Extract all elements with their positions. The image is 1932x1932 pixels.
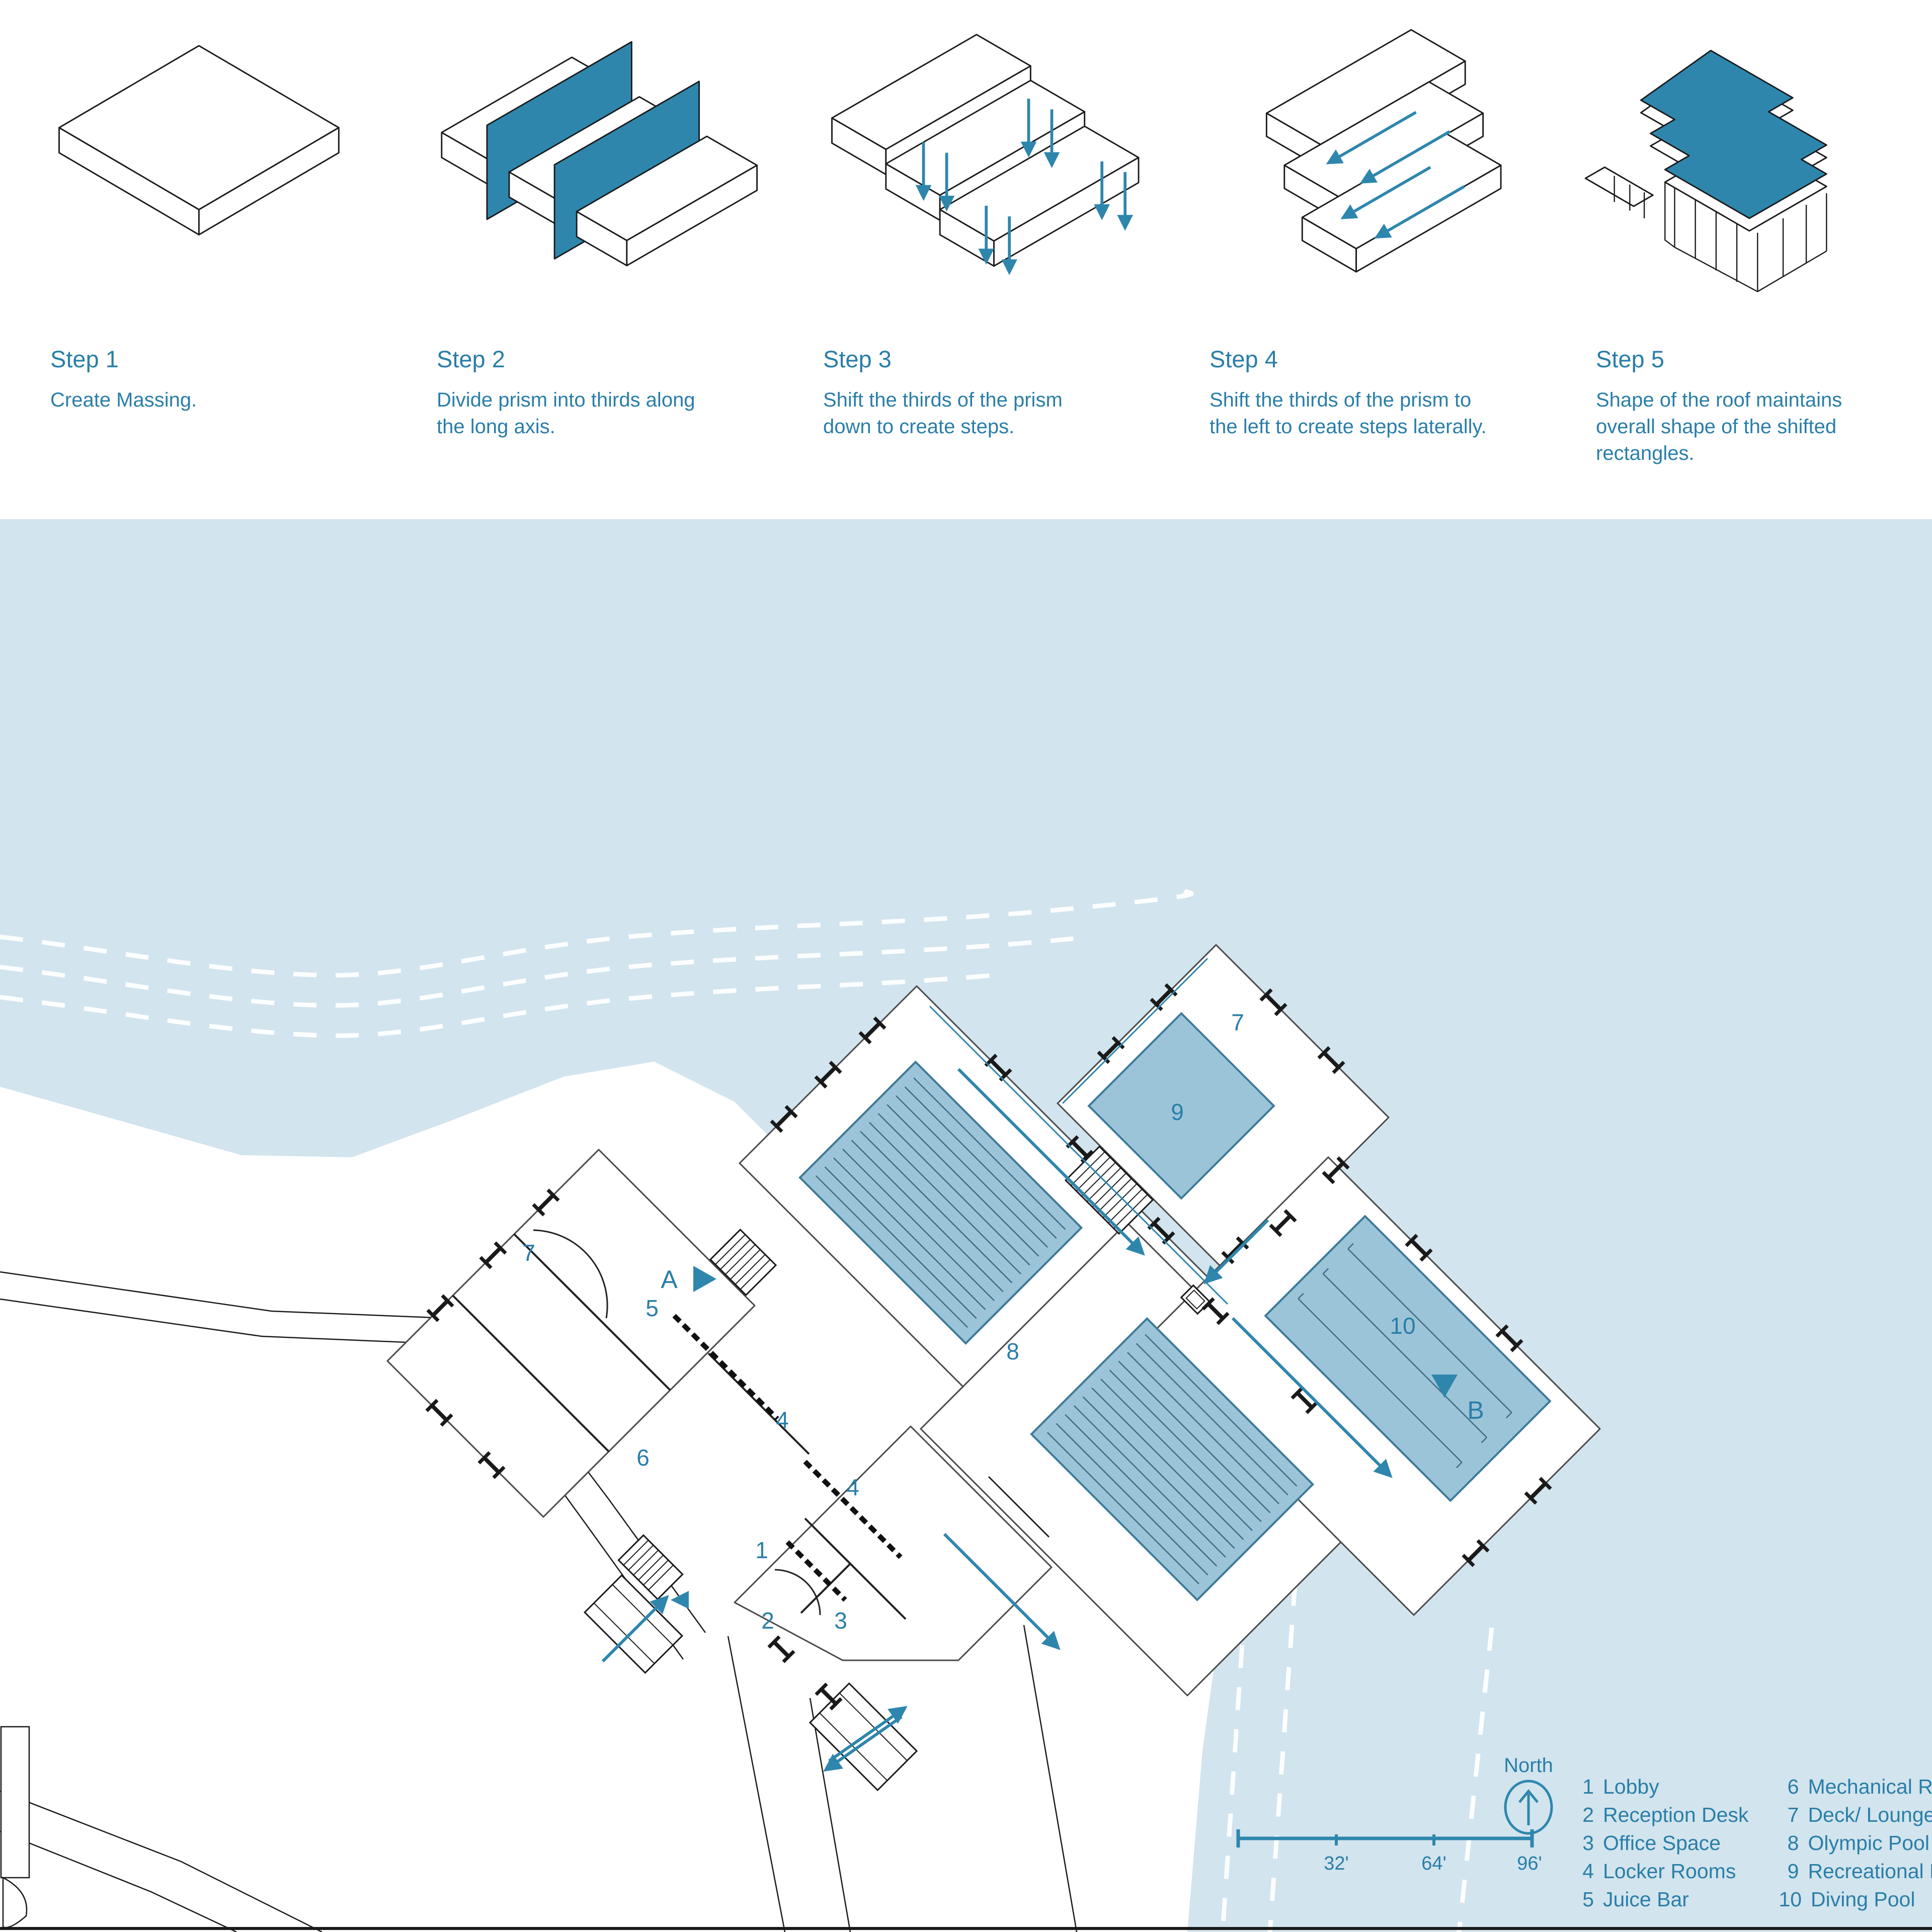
ground-line [0, 1927, 1932, 1930]
step-5: Step 5 Shape of the roof maintains overa… [1546, 0, 1932, 519]
label-mechanical: 6 [636, 1444, 650, 1471]
legend-item: 8Olympic Pool [1779, 1831, 1932, 1855]
legend-num: 8 [1779, 1831, 1799, 1855]
step-5-desc: Shape of the roof maintains overall shap… [1596, 387, 1888, 466]
label-locker-b: 4 [846, 1474, 859, 1500]
legend-num: 4 [1574, 1860, 1594, 1883]
step-2-title: Step 2 [437, 345, 758, 373]
label-section-a: A [661, 1265, 678, 1294]
label-deck-lounge-east: 7 [1231, 1009, 1244, 1035]
step-5-title: Step 5 [1596, 345, 1917, 373]
step-5-massing-diagram [1576, 15, 1923, 327]
legend-label: Reception Desk [1603, 1803, 1748, 1827]
label-lobby: 1 [755, 1537, 768, 1563]
step-2: Step 2 Divide prism into thirds along th… [386, 0, 773, 519]
presentation-board: Step 1 Create Massing. [0, 0, 1932, 1932]
legend-label: Diving Pool [1811, 1888, 1915, 1911]
legend: 1Lobby 2Reception Desk 3Office Space 4Lo… [1574, 1775, 1932, 1911]
legend-label: Lobby [1603, 1775, 1659, 1799]
step-4: Step 4 Shift the thirds of the prism to … [1159, 0, 1546, 519]
legend-item: 4Locker Rooms [1574, 1860, 1748, 1883]
step-3-massing-diagram [803, 15, 1150, 327]
legend-item: 9Recreational Pool [1779, 1860, 1932, 1883]
legend-label: Juice Bar [1603, 1888, 1689, 1911]
legend-label: Mechanical Rooms [1808, 1775, 1932, 1799]
label-olympic-pool: 8 [1006, 1338, 1019, 1364]
legend-num: 2 [1574, 1803, 1594, 1827]
step-1-desc: Create Massing. [50, 387, 342, 414]
label-recreational-pool: 9 [1171, 1099, 1184, 1125]
step-1: Step 1 Create Massing. [0, 0, 386, 519]
legend-num: 7 [1779, 1803, 1799, 1827]
legend-col-2: 6Mechanical Rooms 7Deck/ Lounge Area 8Ol… [1779, 1775, 1932, 1911]
legend-item: 6Mechanical Rooms [1779, 1775, 1932, 1799]
legend-item: 7Deck/ Lounge Area [1779, 1803, 1932, 1827]
north-label: North [1504, 1754, 1553, 1777]
step-1-title: Step 1 [50, 345, 371, 373]
legend-label: Locker Rooms [1603, 1860, 1736, 1883]
scale-tick-64: 64' [1421, 1853, 1446, 1874]
scale-tick-32: 32' [1324, 1853, 1349, 1874]
label-reception: 2 [761, 1607, 774, 1634]
step-4-massing-diagram [1189, 15, 1537, 327]
label-office: 3 [834, 1607, 847, 1634]
legend-item: 1Lobby [1574, 1775, 1748, 1799]
legend-num: 3 [1574, 1831, 1594, 1855]
legend-label: Olympic Pool [1808, 1831, 1929, 1855]
step-2-massing-diagram [417, 15, 764, 327]
legend-num: 1 [1574, 1775, 1594, 1799]
label-locker-a: 4 [776, 1407, 789, 1433]
scale-tick-96: 96' [1517, 1853, 1542, 1874]
legend-item: 3Office Space [1574, 1831, 1748, 1855]
label-section-b: B [1467, 1396, 1484, 1424]
site-plan: 7 5 4 6 4 1 2 3 8 9 7 10 A B North [0, 519, 1932, 1932]
step-3: Step 3 Shift the thirds of the prism dow… [773, 0, 1159, 519]
legend-item: 10Diving Pool [1779, 1888, 1932, 1911]
legend-item: 5Juice Bar [1574, 1888, 1748, 1911]
legend-label: Office Space [1603, 1831, 1721, 1855]
legend-label: Recreational Pool [1808, 1860, 1932, 1883]
legend-num: 5 [1574, 1888, 1594, 1911]
step-4-title: Step 4 [1210, 345, 1531, 373]
legend-num: 10 [1779, 1888, 1802, 1911]
legend-num: 6 [1779, 1775, 1799, 1799]
legend-item: 2Reception Desk [1574, 1803, 1748, 1827]
legend-num: 9 [1779, 1860, 1799, 1883]
label-juice-bar: 5 [646, 1295, 659, 1321]
step-3-title: Step 3 [823, 345, 1144, 373]
step-3-desc: Shift the thirds of the prism down to cr… [823, 387, 1115, 440]
step-4-desc: Shift the thirds of the prism to the lef… [1210, 387, 1501, 440]
legend-label: Deck/ Lounge Area [1808, 1803, 1932, 1827]
label-deck-lounge-west: 7 [522, 1240, 535, 1266]
step-1-massing-diagram [30, 15, 377, 327]
legend-col-1: 1Lobby 2Reception Desk 3Office Space 4Lo… [1574, 1775, 1748, 1911]
label-diving-pool: 10 [1390, 1313, 1415, 1339]
massing-steps-row: Step 1 Create Massing. [0, 0, 1932, 519]
step-2-desc: Divide prism into thirds along the long … [437, 387, 729, 440]
